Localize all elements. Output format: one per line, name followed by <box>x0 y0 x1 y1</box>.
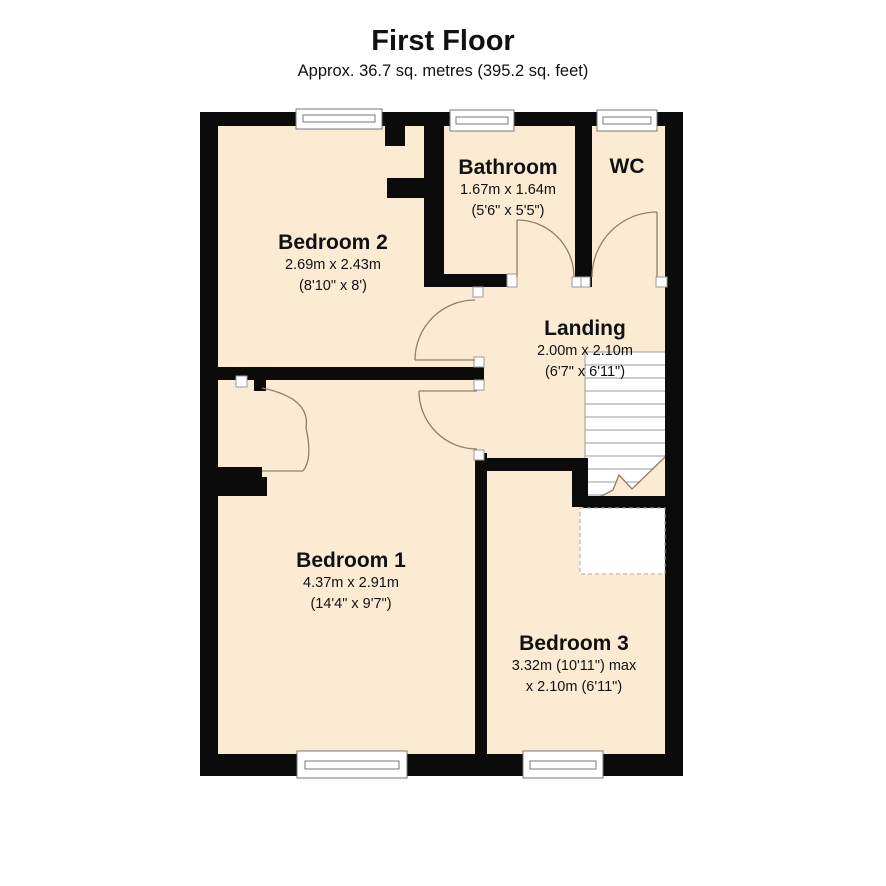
floorplan-drawing <box>0 0 886 886</box>
jamb <box>572 277 581 287</box>
room-dim-metric: 4.37m x 2.91m <box>296 573 406 594</box>
wall-chimney-breast <box>218 467 262 496</box>
wall-chimney-stub-top <box>387 178 438 198</box>
room-name: Bedroom 1 <box>296 549 406 573</box>
wall-bathroom-bottom <box>424 274 507 287</box>
room-dim-imperial: (6'7" x 6'11") <box>537 362 633 383</box>
room-dim-metric: 1.67m x 1.64m <box>458 180 557 201</box>
wall-top-step <box>385 126 405 146</box>
room-label-bedroom3: Bedroom 3 3.32m (10'11") max x 2.10m (6'… <box>512 632 637 697</box>
jamb <box>473 287 483 297</box>
jamb <box>656 277 667 287</box>
room-dim-metric: 2.69m x 2.43m <box>278 255 388 276</box>
wall-bathroom-wc-divider <box>575 126 592 287</box>
room-label-wc: WC <box>610 155 645 179</box>
room-dim-imperial: (14'4" x 9'7") <box>296 594 406 615</box>
understair-void <box>580 508 665 574</box>
wall-stair-bottom <box>583 496 665 508</box>
jamb <box>236 376 247 387</box>
room-dim-metric: 2.00m x 2.10m <box>537 341 633 362</box>
room-label-bedroom1: Bedroom 1 4.37m x 2.91m (14'4" x 9'7") <box>296 549 406 614</box>
room-label-bathroom: Bathroom 1.67m x 1.64m (5'6" x 5'5") <box>458 156 557 221</box>
wall-bedroom1-bedroom3 <box>475 453 487 755</box>
room-dim-metric: 3.32m (10'11") max <box>512 656 637 677</box>
floorplan-page: First Floor Approx. 36.7 sq. metres (395… <box>0 0 886 886</box>
room-label-landing: Landing 2.00m x 2.10m (6'7" x 6'11") <box>537 317 633 382</box>
jamb <box>474 380 484 390</box>
jamb <box>507 274 517 287</box>
room-name: Landing <box>537 317 633 341</box>
room-dim-imperial: (5'6" x 5'5") <box>458 201 557 222</box>
room-name: WC <box>610 155 645 179</box>
wall-bathroom-left <box>424 126 444 287</box>
jamb <box>474 357 484 367</box>
jamb <box>474 450 484 460</box>
jamb <box>581 277 590 287</box>
wall-chimney-step <box>256 477 267 496</box>
room-label-bedroom2: Bedroom 2 2.69m x 2.43m (8'10" x 8') <box>278 231 388 296</box>
room-name: Bedroom 3 <box>512 632 637 656</box>
wall-wardrobe-stub <box>254 380 266 391</box>
room-dim-imperial: (8'10" x 8') <box>278 276 388 297</box>
room-dim-imperial: x 2.10m (6'11") <box>512 677 637 698</box>
room-name: Bathroom <box>458 156 557 180</box>
room-name: Bedroom 2 <box>278 231 388 255</box>
